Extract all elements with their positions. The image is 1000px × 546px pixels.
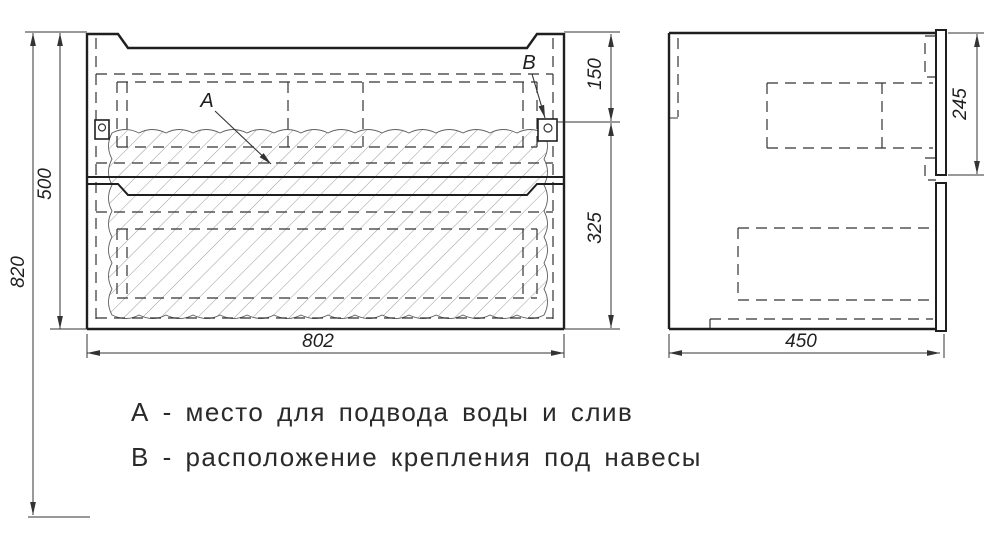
hatch-region-a	[109, 130, 548, 319]
right-mount-hole	[544, 124, 552, 132]
side-view	[669, 30, 946, 331]
dim-label-150: 150	[585, 58, 606, 90]
side-outline	[669, 33, 936, 329]
front-view	[87, 33, 564, 329]
left-mount-hole	[99, 124, 106, 131]
dim-label-500: 500	[35, 168, 56, 200]
callout-leader-b	[532, 74, 545, 118]
lower-drawer-front-edge	[936, 183, 946, 331]
callout-label-b: В	[522, 52, 535, 74]
dim-label-450: 450	[785, 331, 817, 352]
callout-label-a: А	[199, 90, 213, 112]
notes: А - место для подвода воды и слив В - ра…	[131, 397, 702, 472]
dim-label-820: 820	[8, 256, 29, 288]
dim-label-325: 325	[585, 212, 606, 244]
upper-drawer-front-edge	[936, 30, 946, 175]
note-line-b: В - расположение крепления под навесы	[131, 442, 702, 472]
side-hidden-lines	[678, 36, 936, 329]
dim-label-245: 245	[950, 88, 971, 121]
technical-drawing: 820 500 150 325 802 450 245 А В А - мест…	[0, 0, 1000, 546]
dim-label-802: 802	[302, 331, 334, 352]
note-line-a: А - место для подвода воды и слив	[131, 397, 633, 427]
